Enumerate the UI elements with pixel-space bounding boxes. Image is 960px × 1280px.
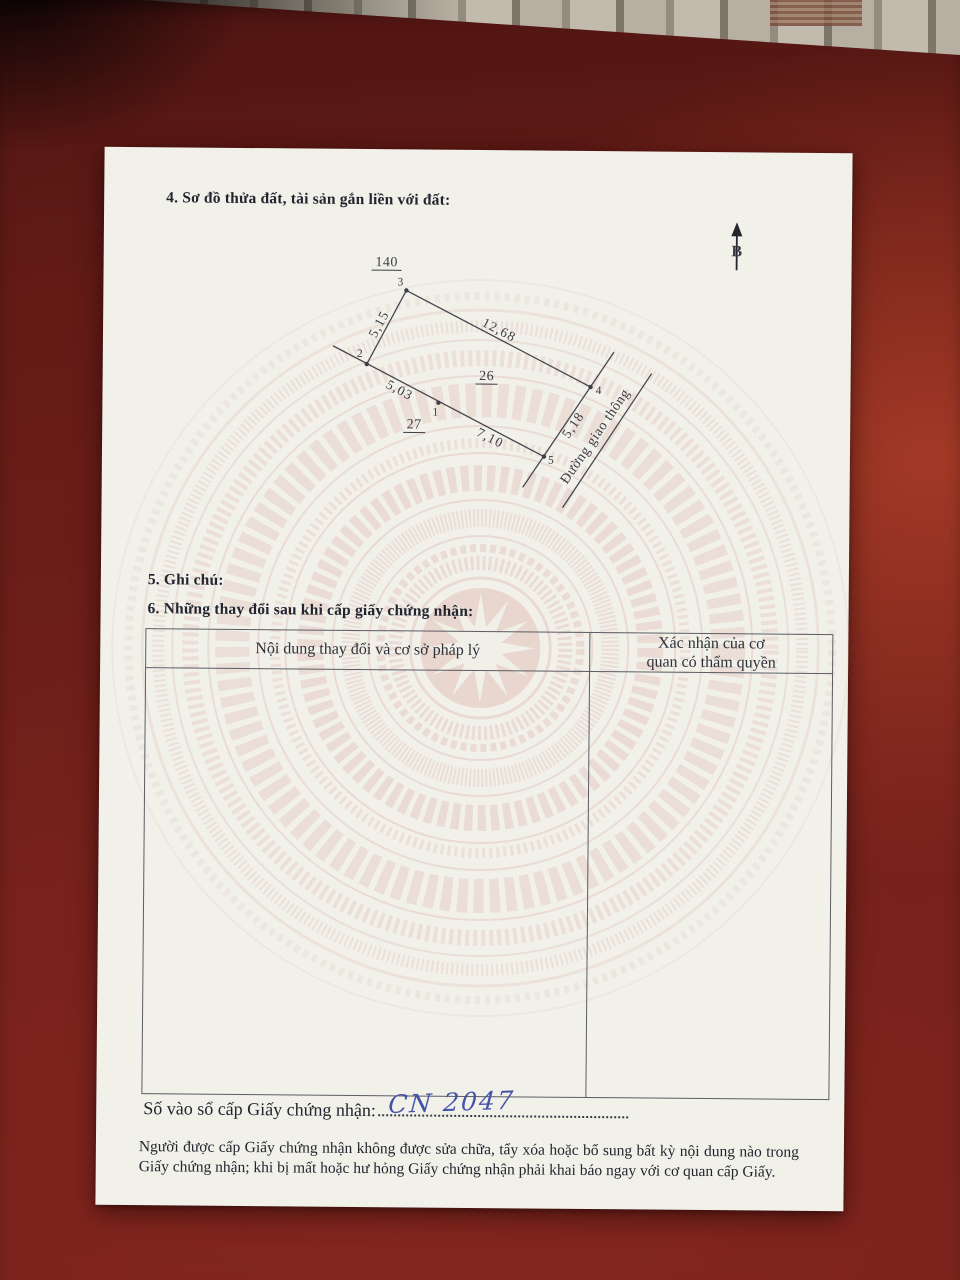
authority-confirm-cell-empty: [586, 672, 832, 1099]
edge-2-3-length: 5,15: [365, 308, 392, 340]
changes-table-header-row: Nội dung thay đổi và cơ sở pháp lý Xác n…: [146, 629, 832, 674]
boundary-edge-3-4: [406, 290, 592, 387]
road-far-edge: [562, 373, 651, 509]
edge-1-5-length: 7,10: [474, 425, 506, 451]
parcel-26-label: 26: [479, 369, 494, 384]
vertex-4: [588, 385, 592, 389]
edge-4-5-length: 5,18: [559, 409, 587, 441]
section4-heading: 4. Sơ đồ thửa đất, tài sản gắn liền với …: [166, 189, 450, 209]
col-authority-line1: Xác nhận của cơ: [658, 633, 765, 653]
north-arrow-icon: B: [731, 222, 743, 270]
vertex-3: [404, 288, 408, 292]
boundary-bottom-edge: [332, 346, 545, 457]
vertex-3-label: 3: [398, 276, 404, 288]
col-authority-confirm-header: Xác nhận của cơ quan có thẩm quyền: [590, 633, 832, 673]
content-change-cell-empty: [142, 668, 590, 1097]
col-authority-line2: quan có thẩm quyền: [646, 653, 775, 673]
edge-3-4-length: 12,68: [480, 315, 519, 345]
road-near-edge: [523, 351, 614, 488]
photo-scene: 4. Sơ đồ thửa đất, tài sản gắn liền với …: [0, 0, 960, 1280]
north-label: B: [731, 243, 742, 260]
vertex-4-label: 4: [596, 385, 602, 397]
vertex-1-label: 1: [432, 407, 438, 419]
road-label: Đường giao thông: [558, 386, 634, 487]
changes-table-body-row: [142, 668, 832, 1099]
registry-number-line: Số vào sổ cấp Giấy chứng nhận:: [143, 1098, 628, 1123]
footer-note: Người được cấp Giấy chứng nhận không đượ…: [139, 1137, 799, 1184]
vertex-2-label: 2: [357, 348, 363, 360]
section6-heading: 6. Những thay đổi sau khi cấp giấy chứng…: [148, 600, 474, 621]
certificate-page: 4. Sơ đồ thửa đất, tài sản gắn liền với …: [95, 147, 852, 1211]
vertex-1: [436, 400, 440, 404]
registry-number-label: Số vào sổ cấp Giấy chứng nhận:: [143, 1098, 376, 1120]
vertex-2: [365, 362, 369, 366]
adjacent-parcel-140-label: 140: [375, 255, 398, 270]
handwritten-registry-number: CN 2047: [387, 1086, 516, 1120]
adjacent-parcel-27-label: 27: [407, 417, 422, 432]
boundary-edge-2-3: [367, 290, 407, 364]
vertex-5: [542, 454, 546, 458]
section5-heading: 5. Ghi chú:: [148, 571, 224, 590]
vertex-5-label: 5: [548, 455, 554, 467]
changes-table: Nội dung thay đổi và cơ sở pháp lý Xác n…: [141, 628, 833, 1100]
col-content-change-header: Nội dung thay đổi và cơ sở pháp lý: [146, 629, 590, 671]
background-wall-pattern: [770, 0, 862, 26]
edge-1-2-length: 5,03: [384, 377, 416, 404]
